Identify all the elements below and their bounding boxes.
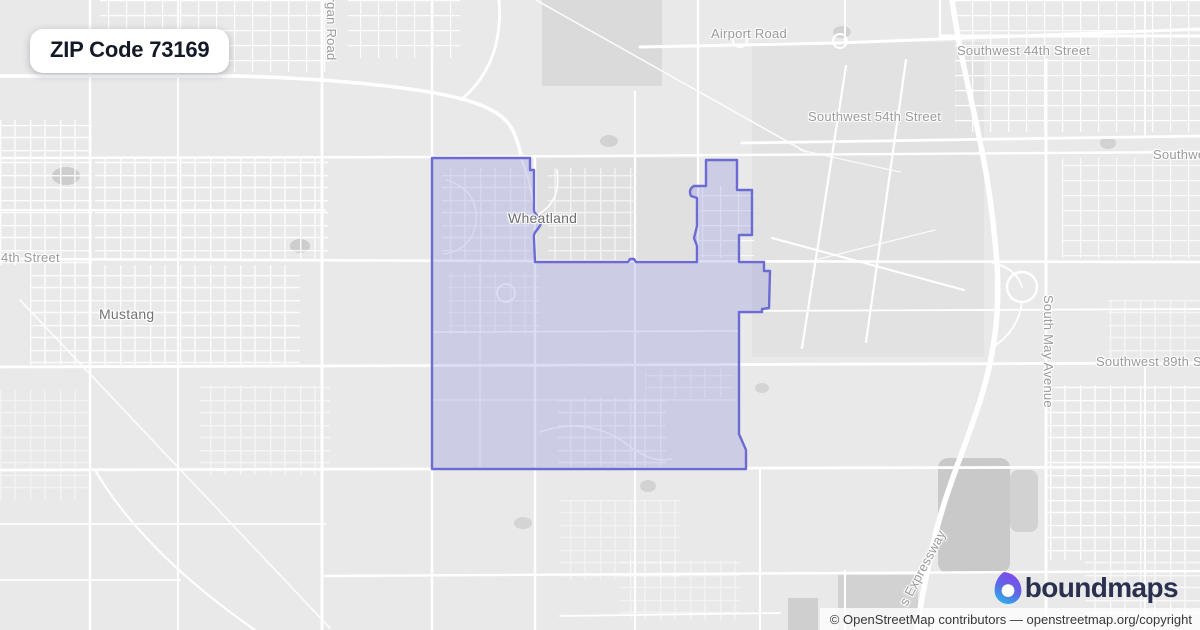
boundmaps-wordmark: boundmaps [1025, 572, 1178, 604]
boundmaps-pin-icon [992, 570, 1024, 606]
boundmaps-logo[interactable]: boundmaps [992, 570, 1178, 606]
map-canvas[interactable]: Airport Road Southwest 44th Street South… [0, 0, 1200, 630]
attribution-bar: © OpenStreetMap contributors — openstree… [820, 608, 1200, 630]
basemap-tiles [0, 0, 1200, 630]
zip-code-badge: ZIP Code 73169 [30, 29, 229, 73]
zip-code-badge-title: ZIP Code 73169 [50, 37, 209, 62]
attribution-link[interactable]: © OpenStreetMap contributors — openstree… [830, 612, 1192, 627]
